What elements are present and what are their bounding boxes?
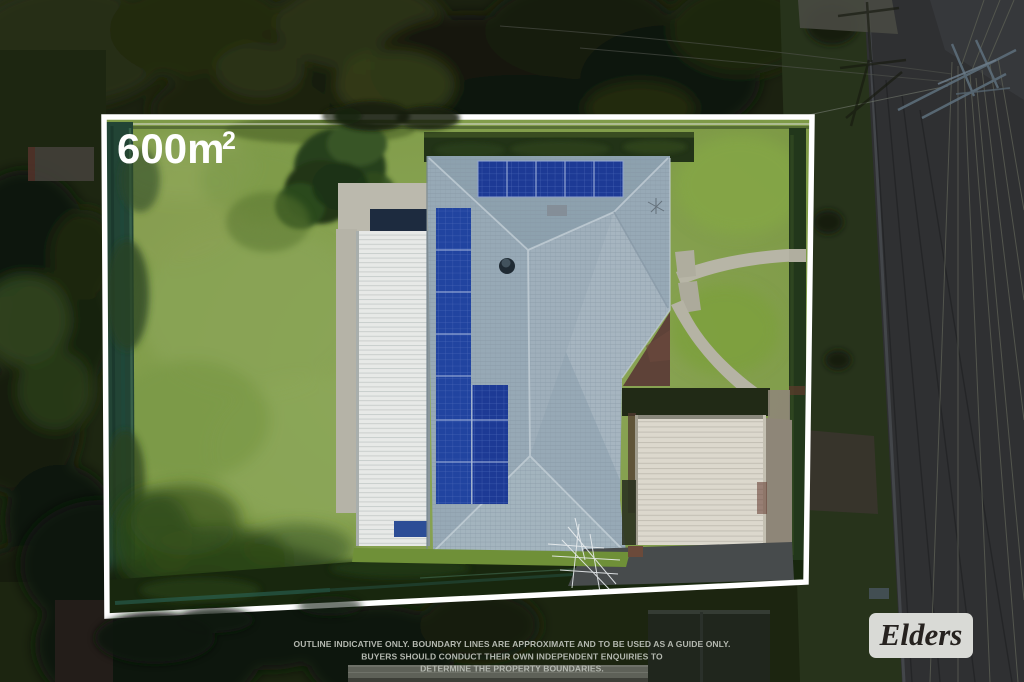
- svg-text:DETERMINE THE PROPERTY BOUNDAR: DETERMINE THE PROPERTY BOUNDARIES.: [420, 664, 604, 674]
- svg-text:OUTLINE INDICATIVE ONLY. BOUND: OUTLINE INDICATIVE ONLY. BOUNDARY LINES …: [294, 639, 731, 649]
- svg-text:Elders: Elders: [879, 617, 963, 652]
- svg-text:2: 2: [222, 127, 236, 155]
- svg-text:600m: 600m: [117, 125, 224, 172]
- svg-text:BUYERS SHOULD CONDUCT THEIR OW: BUYERS SHOULD CONDUCT THEIR OWN INDEPEND…: [361, 652, 663, 662]
